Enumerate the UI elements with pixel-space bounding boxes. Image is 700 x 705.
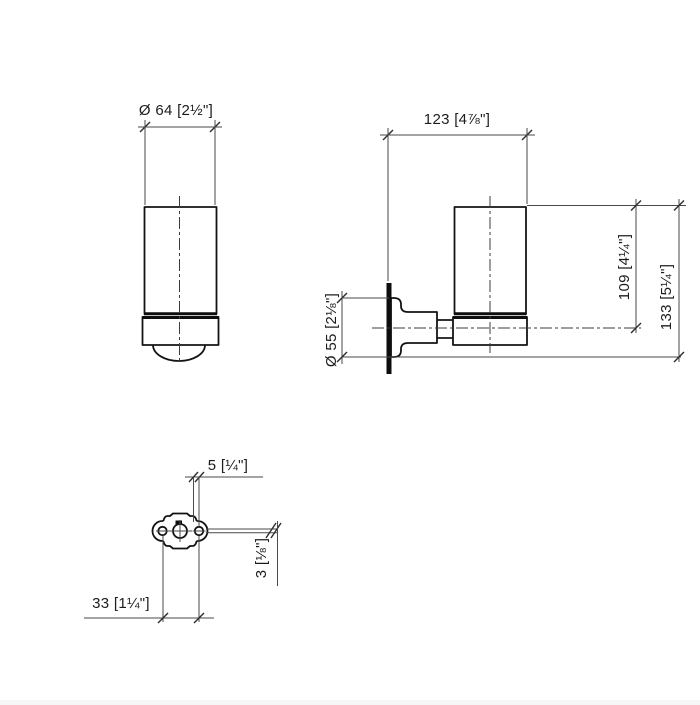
side-flange-diameter-dim-label: Ø 55 [2⅛"] (323, 293, 340, 367)
mounting-offset-dim-label: 5 [¼"] (208, 457, 248, 474)
mounting-hole-spacing-dim-label: 33 [1¼"] (92, 595, 150, 612)
dim-tick (266, 523, 276, 538)
side-view: 123 [4⅞"] 109 [4¼"] 133 [ (323, 111, 686, 374)
glass-front-outline (145, 207, 217, 314)
side-overall-height-dim-label: 133 [5¼"] (658, 264, 675, 330)
dim-tick (271, 523, 281, 538)
front-view: Ø 64 [2½"] (138, 102, 222, 364)
mounting-view: 5 [¼"] 3 [⅛"] 33 [1¼"] (84, 457, 281, 623)
mounting-thickness-dim-label: 3 [⅛"] (253, 538, 270, 578)
front-diameter-dim-label: Ø 64 [2½"] (139, 102, 213, 119)
side-top-to-center-dim-label: 109 [4¼"] (616, 234, 633, 300)
drawing-sheet: Ø 64 [2½"] 123 [4⅞"] (0, 0, 700, 700)
technical-drawing: Ø 64 [2½"] 123 [4⅞"] (0, 0, 700, 700)
holder-front-outline (143, 317, 219, 345)
side-depth-dim-label: 123 [4⅞"] (424, 111, 490, 128)
